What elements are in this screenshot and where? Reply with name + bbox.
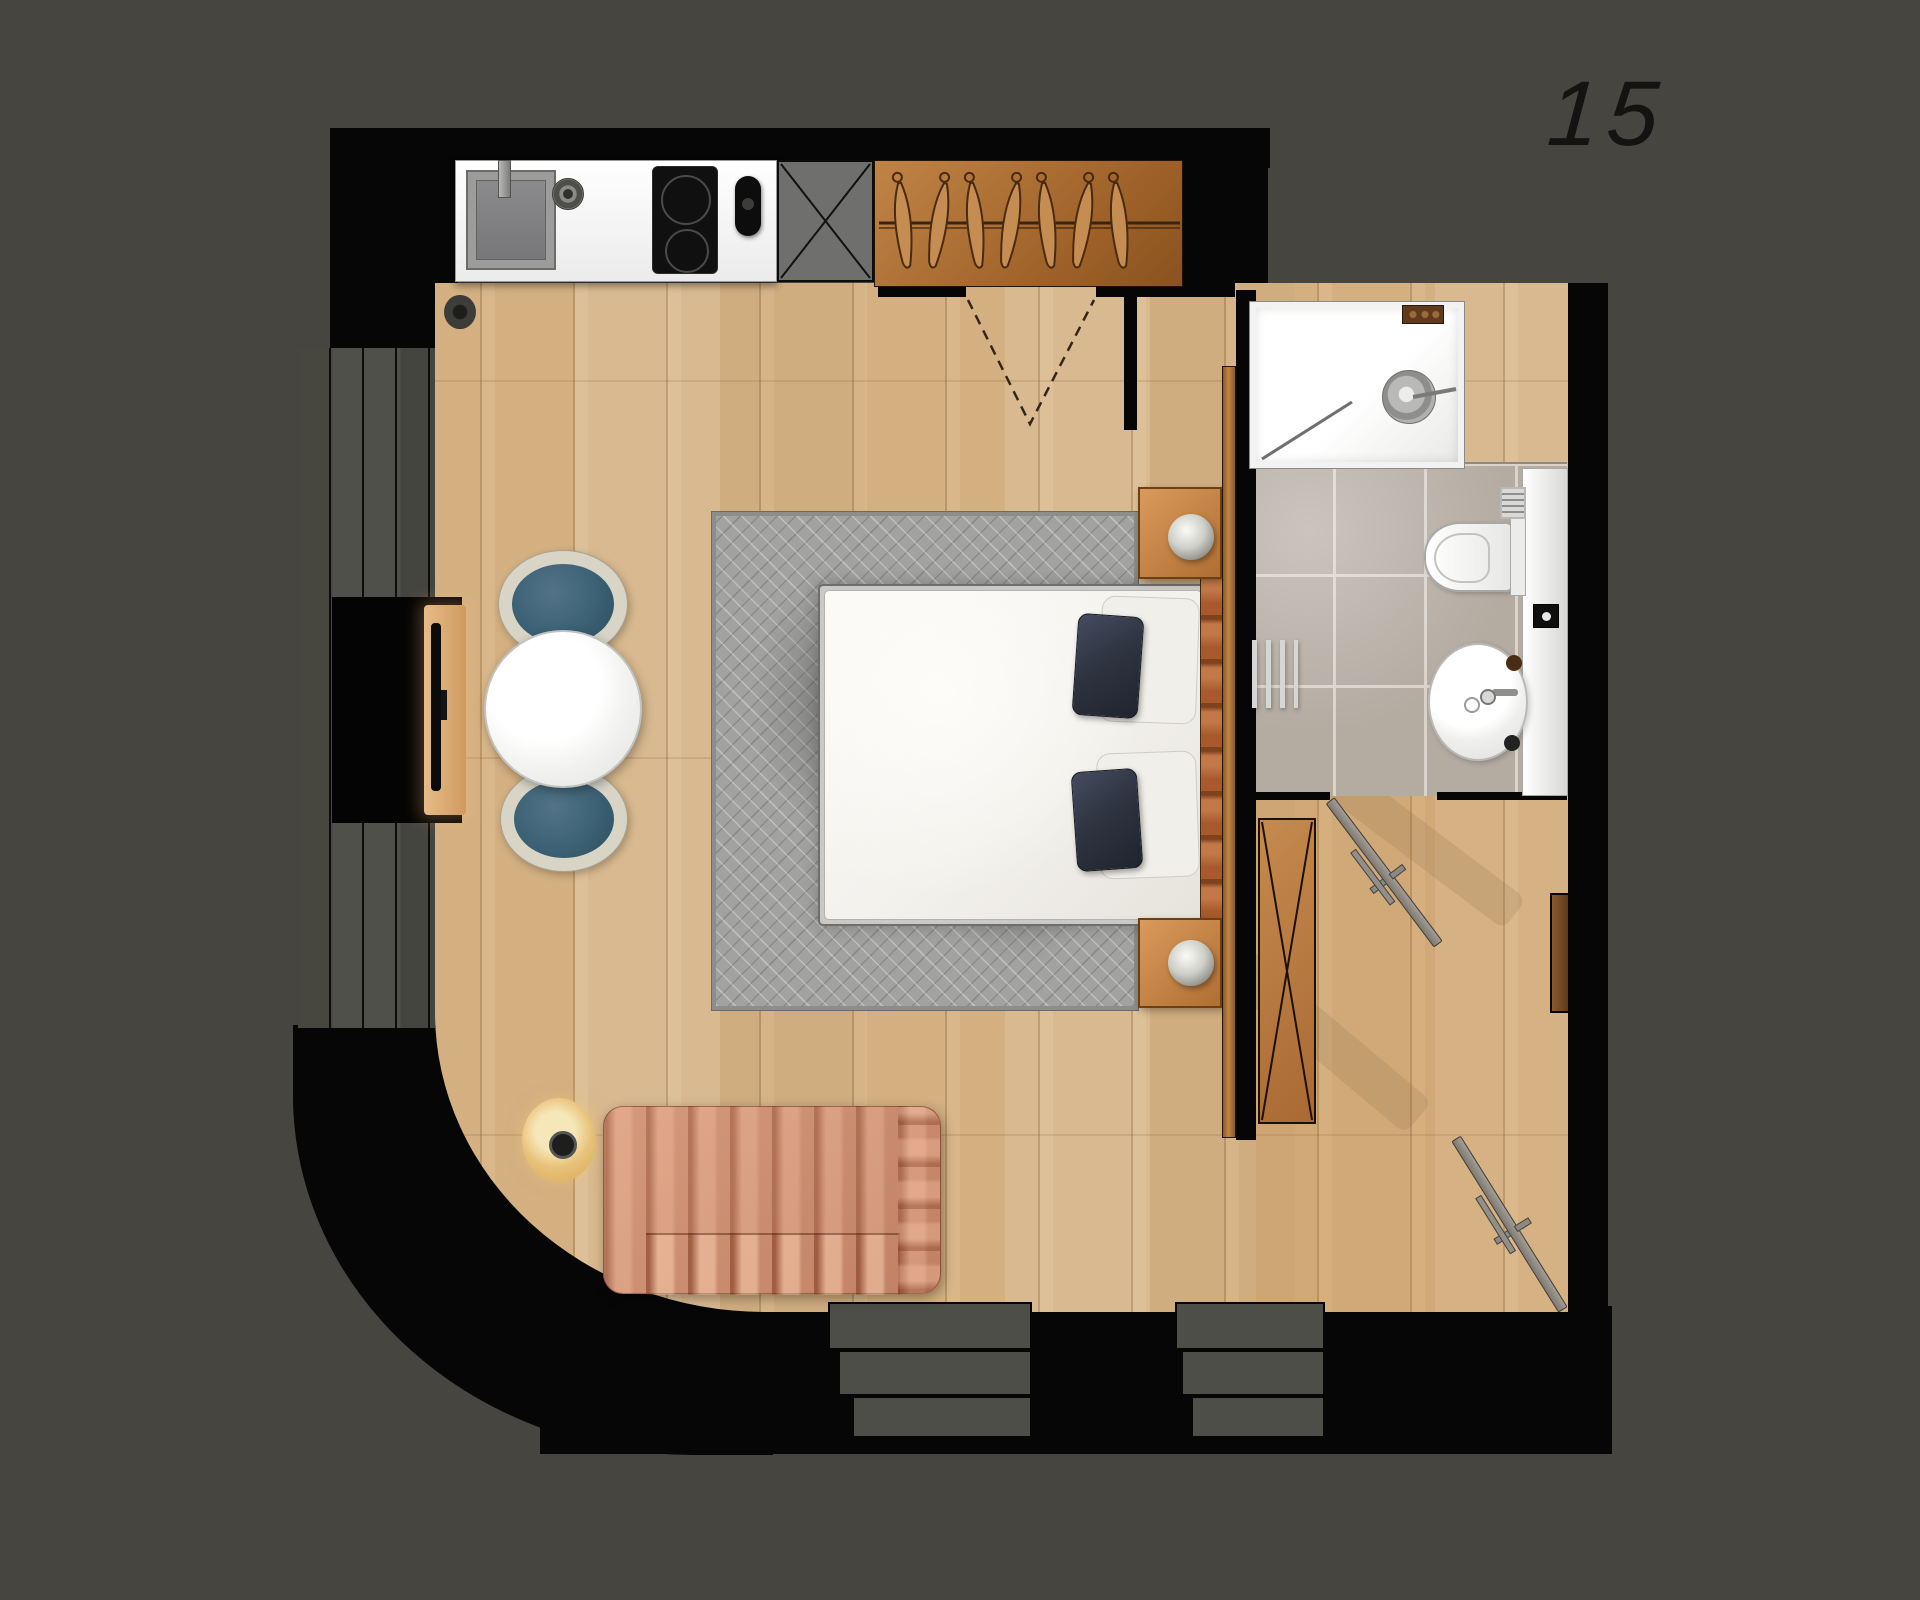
toilet-cistern bbox=[1510, 518, 1526, 596]
wall-closet-return bbox=[1124, 297, 1137, 430]
sofa bbox=[603, 1106, 941, 1294]
pillow-navy-bottom bbox=[1071, 768, 1144, 872]
window-strip bbox=[1175, 1302, 1325, 1350]
shower-head-icon bbox=[1382, 370, 1436, 424]
hanger-icon bbox=[998, 172, 1025, 269]
dining-table bbox=[484, 630, 642, 788]
wall-bathroom-bottom-left bbox=[1245, 792, 1330, 800]
unit-number: 15 bbox=[1544, 62, 1670, 167]
basin-accessory bbox=[1504, 735, 1520, 751]
toilet bbox=[1424, 522, 1514, 592]
floor-lamp-core bbox=[549, 1131, 577, 1159]
vanity-counter bbox=[1522, 468, 1568, 796]
table-lamp-top bbox=[1168, 514, 1214, 560]
basin-accessory bbox=[1506, 655, 1522, 671]
sink-tap-dial bbox=[552, 178, 584, 210]
tv-bracket bbox=[441, 690, 447, 720]
window-strip bbox=[852, 1396, 1032, 1438]
soap-dish bbox=[1533, 604, 1559, 628]
shower-shelf bbox=[1402, 305, 1444, 324]
hanger-icon bbox=[926, 172, 953, 269]
wardrobe-rail-svg bbox=[875, 161, 1184, 288]
toilet-seat bbox=[1434, 533, 1490, 583]
wardrobe bbox=[874, 160, 1183, 287]
pillow-navy-top bbox=[1072, 613, 1145, 719]
hall-cabinet bbox=[1258, 818, 1316, 1124]
floor-bin bbox=[444, 295, 476, 329]
table-lamp-bottom bbox=[1168, 940, 1214, 986]
hanger-icon bbox=[889, 172, 916, 269]
sliding-partition bbox=[1222, 366, 1236, 1138]
towel-ladder-radiator bbox=[1252, 640, 1298, 708]
soap bbox=[1542, 612, 1551, 621]
kettle-lid bbox=[742, 198, 754, 210]
wall-niche-sill bbox=[1550, 893, 1570, 1013]
window-strip bbox=[838, 1350, 1032, 1396]
bottom-window-group-left bbox=[828, 1302, 1028, 1436]
kitchen-faucet bbox=[498, 160, 511, 198]
wall-bottom-band bbox=[540, 1306, 1612, 1454]
induction-cooktop bbox=[652, 166, 718, 274]
kettle bbox=[735, 176, 761, 236]
wall-right-band bbox=[1566, 455, 1608, 1312]
service-shaft bbox=[777, 160, 874, 282]
basin-drain bbox=[1464, 697, 1480, 713]
hanger-icon bbox=[1033, 172, 1060, 269]
bottom-window-group-right bbox=[1175, 1302, 1321, 1436]
burner-large bbox=[661, 175, 711, 225]
chair-seat bbox=[514, 780, 614, 858]
floor-plan-canvas: 15 bbox=[0, 0, 1920, 1600]
towel-rail bbox=[1500, 487, 1526, 519]
sink-basin bbox=[476, 180, 546, 260]
burner-small bbox=[665, 229, 709, 273]
floor-lamp bbox=[522, 1098, 596, 1182]
window-strip bbox=[1181, 1350, 1325, 1396]
tv bbox=[431, 623, 441, 791]
sofa-seat-cushions bbox=[646, 1233, 900, 1295]
wash-basin bbox=[1428, 643, 1528, 761]
basin-knob bbox=[1480, 689, 1496, 705]
kitchen-sink bbox=[466, 170, 556, 270]
sofa-arm bbox=[898, 1107, 940, 1293]
window-strip bbox=[828, 1302, 1032, 1350]
window-strip bbox=[1191, 1396, 1325, 1438]
wardrobe-hangers bbox=[889, 172, 1132, 269]
hanger-icon bbox=[1105, 172, 1132, 269]
hanger-icon bbox=[1070, 172, 1097, 269]
hanger-icon bbox=[961, 172, 988, 269]
